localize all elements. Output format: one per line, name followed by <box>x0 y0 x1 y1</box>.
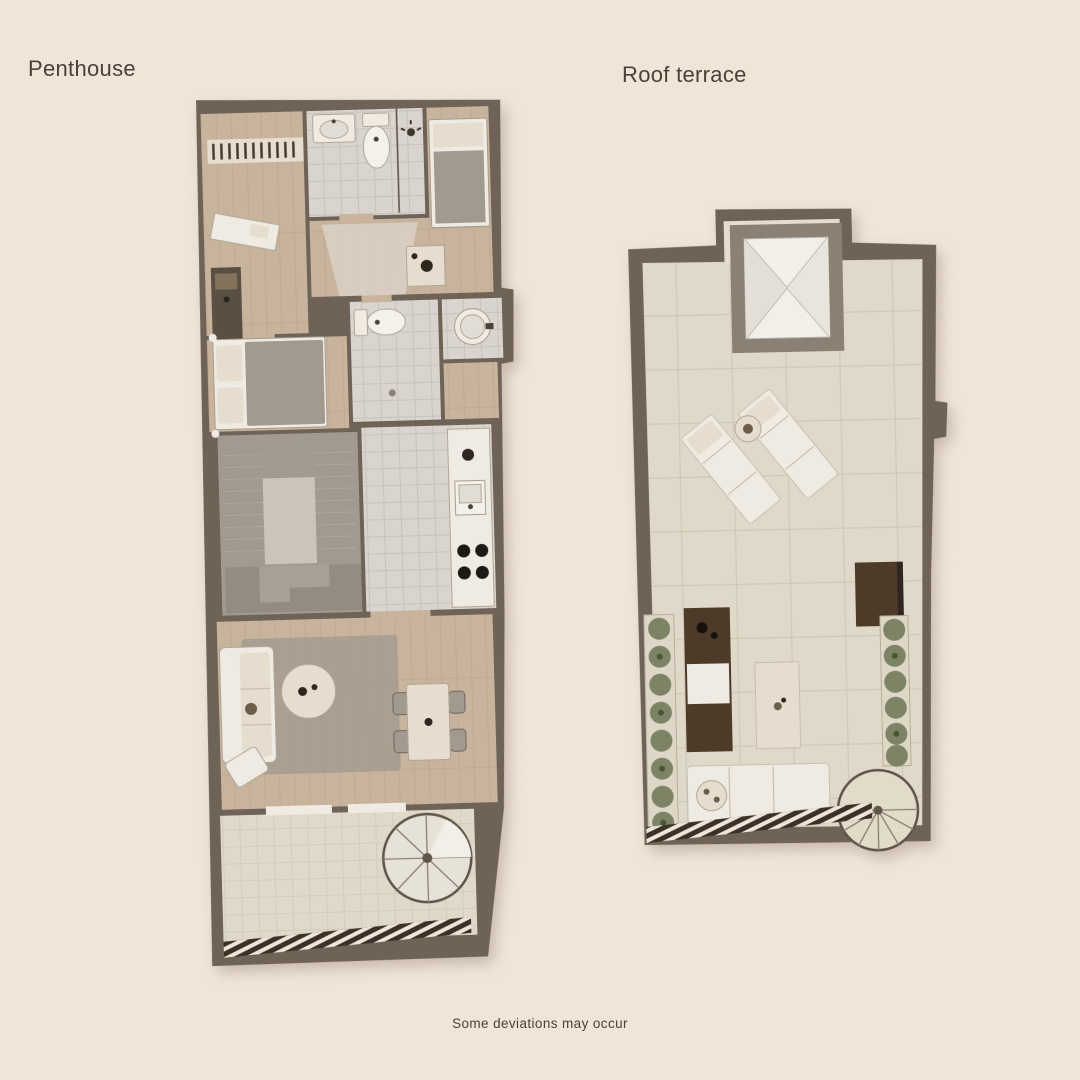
terrace-door-threshold <box>266 805 332 816</box>
floor-plan-page: Penthouse Roof terrace Some deviations m… <box>0 0 1080 1080</box>
toilet <box>362 113 390 169</box>
coffee-table <box>281 664 336 719</box>
kitchen-hall-floor <box>443 362 499 419</box>
kitchen-sink <box>455 480 486 515</box>
roof-terrace-plan <box>627 205 956 855</box>
double-bed <box>209 331 328 438</box>
floor-plan-graphic <box>0 0 1080 1080</box>
cabinet <box>211 267 243 342</box>
dining-chair <box>450 729 467 751</box>
hallway-floor <box>309 216 493 297</box>
skylight <box>730 223 845 353</box>
outdoor-counter <box>684 607 733 752</box>
penthouse-plan <box>188 92 532 967</box>
door-opening <box>339 213 373 222</box>
dining-chair <box>449 691 466 713</box>
wardrobe <box>207 137 304 164</box>
bathroom-sink <box>313 114 356 143</box>
outdoor-table <box>755 662 801 749</box>
sofa <box>219 646 276 763</box>
toilet-2 <box>354 308 406 335</box>
planter-right <box>880 616 911 768</box>
planter-left <box>644 614 679 837</box>
single-bed <box>429 118 490 228</box>
child-desk <box>406 245 445 286</box>
side-table <box>735 416 762 443</box>
kitchen-counter <box>447 428 494 607</box>
door-opening <box>362 295 392 303</box>
terrace-door-threshold <box>348 803 406 814</box>
spiral-staircase <box>382 813 472 903</box>
